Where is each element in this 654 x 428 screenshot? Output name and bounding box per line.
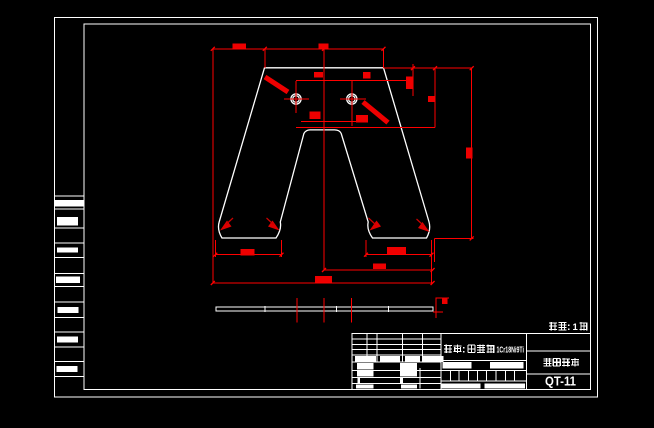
svg-text:QT-11: QT-11 bbox=[545, 374, 576, 389]
svg-text:1Cr18Ni9Ti: 1Cr18Ni9Ti bbox=[497, 345, 525, 355]
svg-text:1: 1 bbox=[573, 322, 579, 333]
